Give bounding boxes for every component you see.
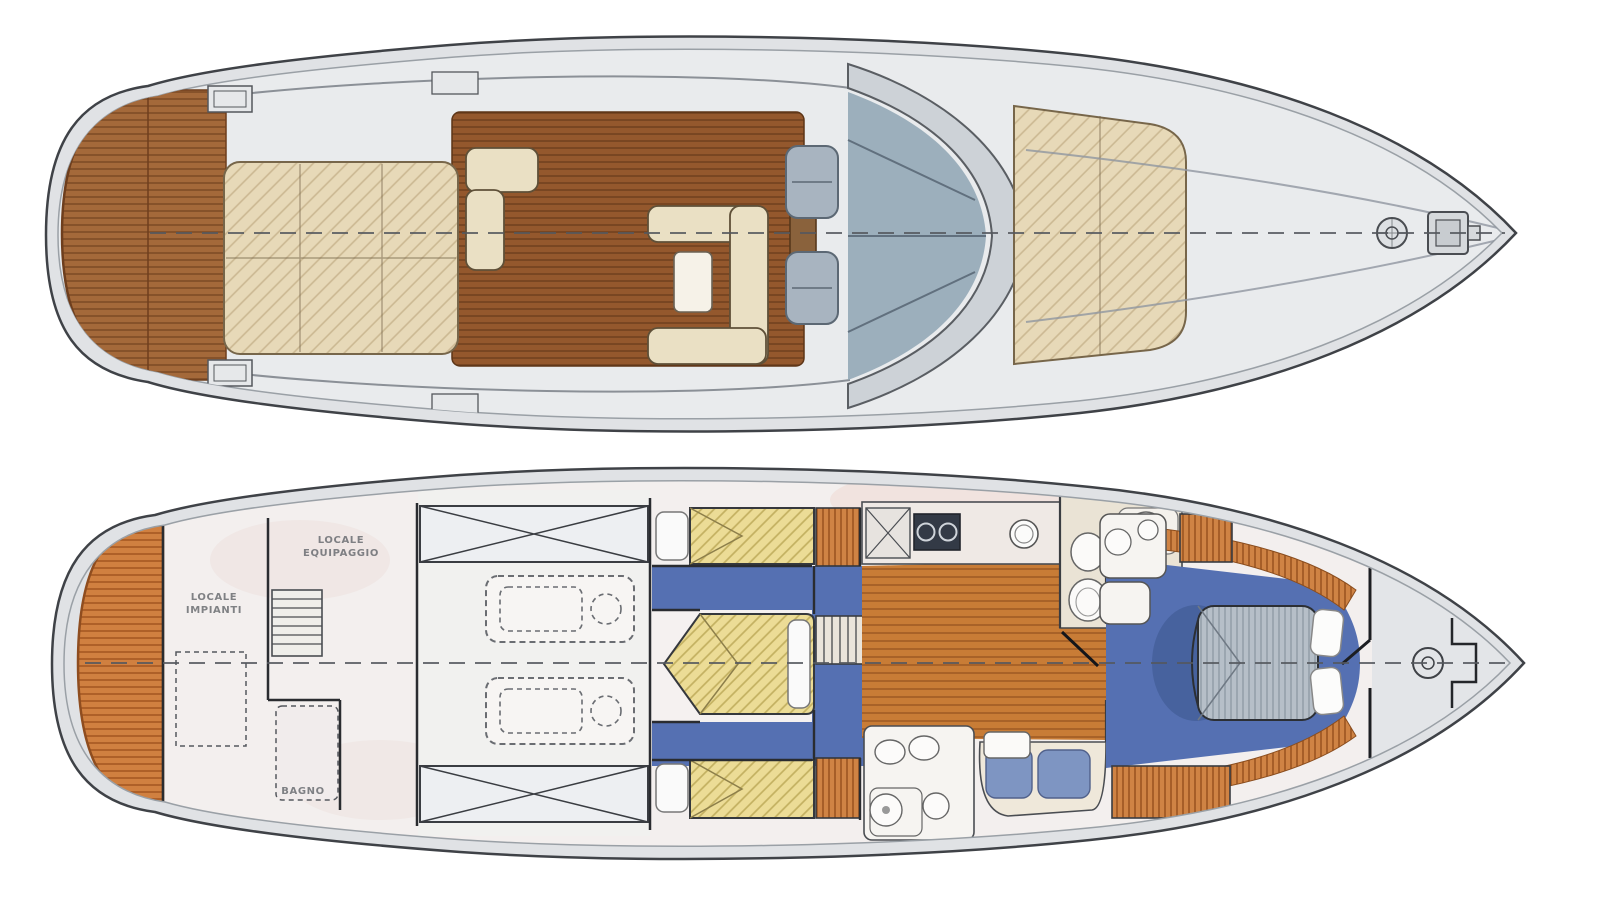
wash-tint xyxy=(210,520,390,600)
main-deck-plan xyxy=(46,37,1516,432)
equipment-room-label: LOCALE xyxy=(191,592,237,603)
aft-deck-teak xyxy=(148,90,226,380)
galley xyxy=(862,502,1062,564)
dinette xyxy=(980,732,1106,816)
aft-sunpad xyxy=(224,162,458,354)
crew-quarters-label: LOCALE xyxy=(318,535,364,546)
galley-hatch xyxy=(866,508,910,558)
bathroom-label: BAGNO xyxy=(281,786,324,797)
wardrobe-starboard xyxy=(816,758,860,818)
pillow xyxy=(1310,667,1345,716)
floorplan-svg: LOCALE IMPIANTI LOCALE EQUIPAGGIO BAGNO xyxy=(0,0,1600,902)
shower-room xyxy=(864,726,974,840)
bow-sunpad xyxy=(1014,106,1186,364)
galley-sink xyxy=(1010,520,1038,548)
fuel-tank-port xyxy=(420,506,648,562)
vip-cabin xyxy=(652,610,814,722)
deck-hatch-port xyxy=(208,86,252,112)
stove xyxy=(914,514,960,550)
crew-quarters-label: EQUIPAGGIO xyxy=(303,548,379,559)
engine-starboard xyxy=(486,678,634,744)
pillow xyxy=(1310,609,1345,658)
engine-port xyxy=(486,576,634,642)
dinette-table xyxy=(984,732,1030,758)
lower-deck-plan: LOCALE IMPIANTI LOCALE EQUIPAGGIO BAGNO xyxy=(52,468,1524,859)
crew-stairs xyxy=(272,590,322,656)
guest-cabin-port-bed xyxy=(656,508,814,564)
master-wardrobe-port xyxy=(1180,514,1232,562)
gunwale-locker-port xyxy=(432,72,478,94)
wardrobe-port xyxy=(816,508,860,566)
cockpit-table xyxy=(674,252,712,312)
deck-hatch-starboard xyxy=(208,360,252,386)
guest-cabin-starboard-bed xyxy=(656,760,814,818)
fuel-tank-starboard xyxy=(420,766,648,822)
equipment-room-label: IMPIANTI xyxy=(186,605,242,616)
yacht-floorplan-drawing: LOCALE IMPIANTI LOCALE EQUIPAGGIO BAGNO xyxy=(0,0,1600,902)
